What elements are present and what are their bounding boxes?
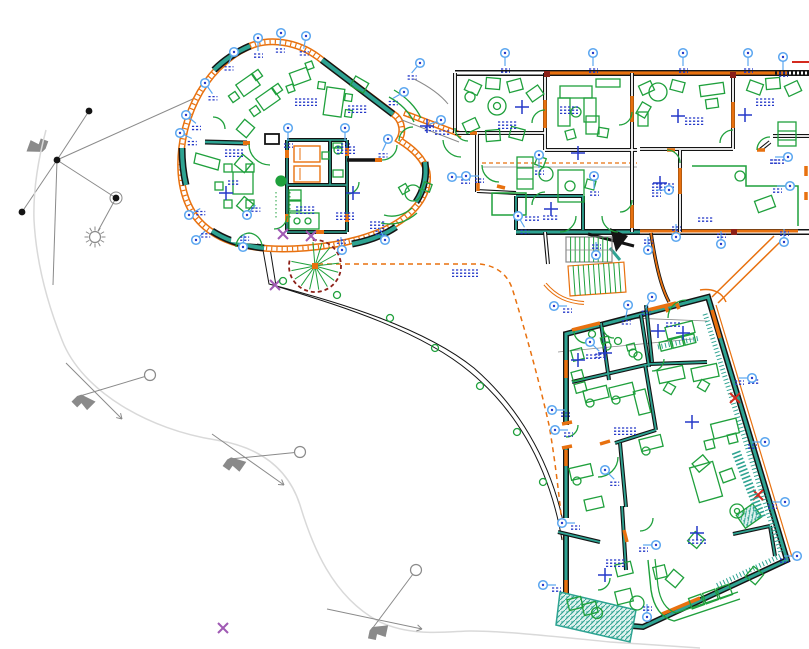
furniture-item (323, 87, 345, 117)
camera-leader (80, 375, 150, 396)
furniture-item (215, 182, 223, 190)
survey-point (86, 108, 93, 115)
furniture-item (558, 98, 570, 126)
balloon-id-dot (783, 241, 785, 243)
wall-path (651, 233, 669, 302)
furniture-item (294, 166, 320, 182)
furniture-item (565, 129, 576, 140)
sun-ray (101, 240, 104, 242)
cad-circle (280, 278, 287, 285)
cad-path (640, 518, 653, 531)
camera-target-circle (295, 447, 306, 458)
camera-marker (72, 390, 96, 414)
cad-circle (514, 429, 521, 436)
spiral-newel (312, 263, 318, 269)
stair-tread (598, 264, 600, 294)
sun-ray (101, 232, 104, 234)
camera-target-circle (145, 370, 156, 381)
sun-ray (98, 243, 100, 246)
balloon-id-dot (655, 544, 657, 546)
cad-polygon (194, 153, 220, 170)
furniture-item (584, 496, 604, 511)
cad-circle (615, 338, 622, 345)
balloon-id-dot (720, 243, 722, 245)
cad-line (53, 160, 57, 285)
furniture-item (228, 91, 239, 102)
arrow-head (416, 629, 422, 631)
cad-circle (565, 181, 575, 191)
balloon-id-dot (682, 52, 684, 54)
balloon-id-dot (387, 138, 389, 140)
furniture-item (697, 379, 709, 391)
stair-tread (614, 263, 616, 293)
balloon-id-dot (592, 52, 594, 54)
balloon-id-dot (246, 214, 248, 216)
stair-tread (609, 263, 611, 293)
furniture-item (233, 172, 253, 194)
stair-tread (604, 264, 606, 294)
cad-path (414, 79, 448, 104)
sun-symbol (90, 232, 101, 243)
furniture-item (691, 363, 719, 381)
cad-circle (305, 218, 311, 224)
balloon-id-dot (747, 52, 749, 54)
furniture-item (560, 86, 592, 98)
furniture-item (256, 88, 280, 111)
staircase (566, 237, 612, 262)
balloon-id-dot (751, 377, 753, 379)
stair-tread (578, 265, 580, 295)
furniture-item (754, 195, 775, 212)
stair-tread (619, 262, 621, 292)
furniture-item (345, 110, 353, 118)
balloon-id-dot (538, 154, 540, 156)
cad-circle (735, 509, 740, 514)
wall-path (545, 284, 584, 303)
balloon-id-dot (553, 305, 555, 307)
balloon-id-dot (784, 501, 786, 503)
balloon-id-dot (195, 239, 197, 241)
cad-circle (488, 97, 506, 115)
furniture-item (265, 134, 279, 144)
cad-line (22, 160, 57, 212)
balloon-id-dot (647, 249, 649, 251)
furniture-item (766, 77, 781, 89)
furniture-item (670, 79, 685, 92)
cad-circle (735, 171, 745, 181)
furniture-item (294, 146, 320, 162)
furniture-item (517, 157, 533, 189)
stair-tread (583, 265, 585, 295)
balloon-id-dot (242, 246, 244, 248)
balloon-id-dot (341, 249, 343, 251)
furniture-item (657, 365, 685, 383)
cad-circle (573, 477, 581, 485)
furniture-item (596, 79, 620, 87)
balloon-id-dot (627, 304, 629, 306)
cad-circle (477, 383, 484, 390)
cad-line (57, 160, 116, 198)
sun-ray (90, 243, 92, 246)
balloon-id-dot (344, 127, 346, 129)
camera-leader (372, 570, 416, 629)
cad-viewport (0, 0, 809, 649)
furniture-item (399, 184, 410, 195)
balloon-id-dot (789, 185, 791, 187)
view-direction-line (66, 363, 122, 419)
floor-plan-canvas (0, 0, 809, 649)
cad-circle (294, 218, 300, 224)
wall-path (205, 142, 247, 143)
balloon-id-dot (796, 555, 798, 557)
furniture-item (731, 229, 737, 235)
balloon-id-dot (517, 215, 519, 217)
cad-circle (465, 92, 475, 102)
furniture-item (526, 85, 544, 102)
furniture-item (286, 84, 295, 93)
spiral-tread (291, 261, 315, 266)
furniture-item (249, 105, 260, 116)
balloon-id-dot (185, 114, 187, 116)
furniture-item (747, 80, 764, 95)
furniture-item (705, 98, 718, 109)
balloon-id-dot (204, 82, 206, 84)
staircase (568, 262, 626, 296)
furniture-item (699, 82, 724, 96)
survey-point (113, 195, 120, 202)
cad-circle (649, 83, 667, 101)
cad-circle (494, 103, 501, 110)
furniture-item (784, 81, 801, 97)
survey-point (19, 209, 26, 216)
cad-path (263, 250, 566, 536)
furniture-item (236, 119, 254, 137)
camera-body (72, 390, 96, 414)
cad-circle (387, 315, 394, 322)
furniture-item (333, 170, 343, 177)
balloon-id-dot (782, 56, 784, 58)
sun-ray (86, 240, 89, 242)
furniture-item (289, 201, 301, 211)
site-survey-layer (19, 98, 195, 285)
balloon-id-dot (589, 341, 591, 343)
furniture-item (289, 190, 301, 200)
stair-tread (588, 265, 590, 295)
view-direction-line (212, 434, 284, 485)
furniture-item (224, 164, 232, 172)
wall-path (566, 297, 787, 627)
cad-circle (571, 107, 581, 117)
balloon-id-dot (305, 35, 307, 37)
cad-path (243, 143, 382, 232)
balloon-id-dot (542, 584, 544, 586)
furniture-item (544, 71, 550, 77)
furniture-item (571, 370, 584, 382)
cad-path (443, 140, 461, 157)
balloon-id-dot (440, 119, 442, 121)
balloon-id-dot (504, 52, 506, 54)
balloon-id-dot (651, 296, 653, 298)
camera-body (27, 135, 49, 157)
balloon-id-dot (561, 522, 563, 524)
cad-path (482, 165, 499, 182)
furniture-item (720, 468, 736, 483)
furniture-item (345, 94, 353, 102)
balloon-id-dot (595, 254, 597, 256)
balloon-id-dot (233, 51, 235, 53)
survey-point (54, 157, 61, 164)
balloon-id-dot (179, 132, 181, 134)
balloon-id-dot (451, 176, 453, 178)
cad-path (598, 578, 610, 590)
cad-circle (630, 596, 644, 610)
furniture-item (224, 200, 232, 208)
furniture-item (322, 152, 329, 159)
furniture-item (626, 343, 635, 351)
cad-circle (334, 292, 341, 299)
camera-target-circle (411, 565, 422, 576)
balloon-id-dot (188, 214, 190, 216)
furniture-item (574, 382, 587, 394)
balloon-id-dot (287, 127, 289, 129)
furniture-item (569, 464, 593, 481)
balloon-id-dot (280, 32, 282, 34)
camera-marker (27, 135, 49, 157)
balloon-id-dot (604, 469, 606, 471)
balloon-id-dot (764, 441, 766, 443)
sun-ray (90, 228, 92, 231)
sun-ray (86, 232, 89, 234)
building-walls-layer (181, 42, 809, 642)
furniture-item (653, 565, 668, 580)
furniture-item (486, 77, 501, 89)
furniture-item (586, 116, 599, 134)
furniture-item (318, 82, 326, 90)
cad-path (532, 192, 545, 205)
stair-boundary (568, 262, 626, 296)
cad-circle (589, 331, 596, 338)
balloon-id-dot (551, 409, 553, 411)
balloon-id-dot (787, 156, 789, 158)
balloon-id-dot (668, 189, 670, 191)
furniture-item (736, 504, 762, 529)
balloon-id-dot (593, 175, 595, 177)
balloon-id-dot (257, 37, 259, 39)
cad-circle (540, 479, 547, 486)
furniture-item (236, 74, 260, 97)
stair-tread (593, 264, 595, 294)
balloon-id-dot (419, 62, 421, 64)
balloon-id-dot (675, 236, 677, 238)
furniture-item (730, 72, 736, 78)
balloon-id-dot (646, 616, 648, 618)
cad-line (718, 242, 780, 303)
balloon-id-dot (384, 239, 386, 241)
cad-path (213, 117, 225, 129)
furniture-item (507, 78, 523, 92)
balloon-id-dot (554, 429, 556, 431)
furniture-item (638, 81, 654, 96)
cad-path (34, 130, 700, 648)
cad-path (562, 302, 720, 614)
furniture-item (665, 569, 683, 587)
cad-circle (276, 176, 286, 186)
furniture-item (663, 382, 675, 394)
balloon-id-dot (465, 175, 467, 177)
furniture-item (704, 439, 715, 450)
balloon-id-dot (403, 91, 405, 93)
furniture-item (305, 61, 314, 70)
stair-tread (573, 266, 575, 296)
furniture-item (711, 418, 740, 439)
